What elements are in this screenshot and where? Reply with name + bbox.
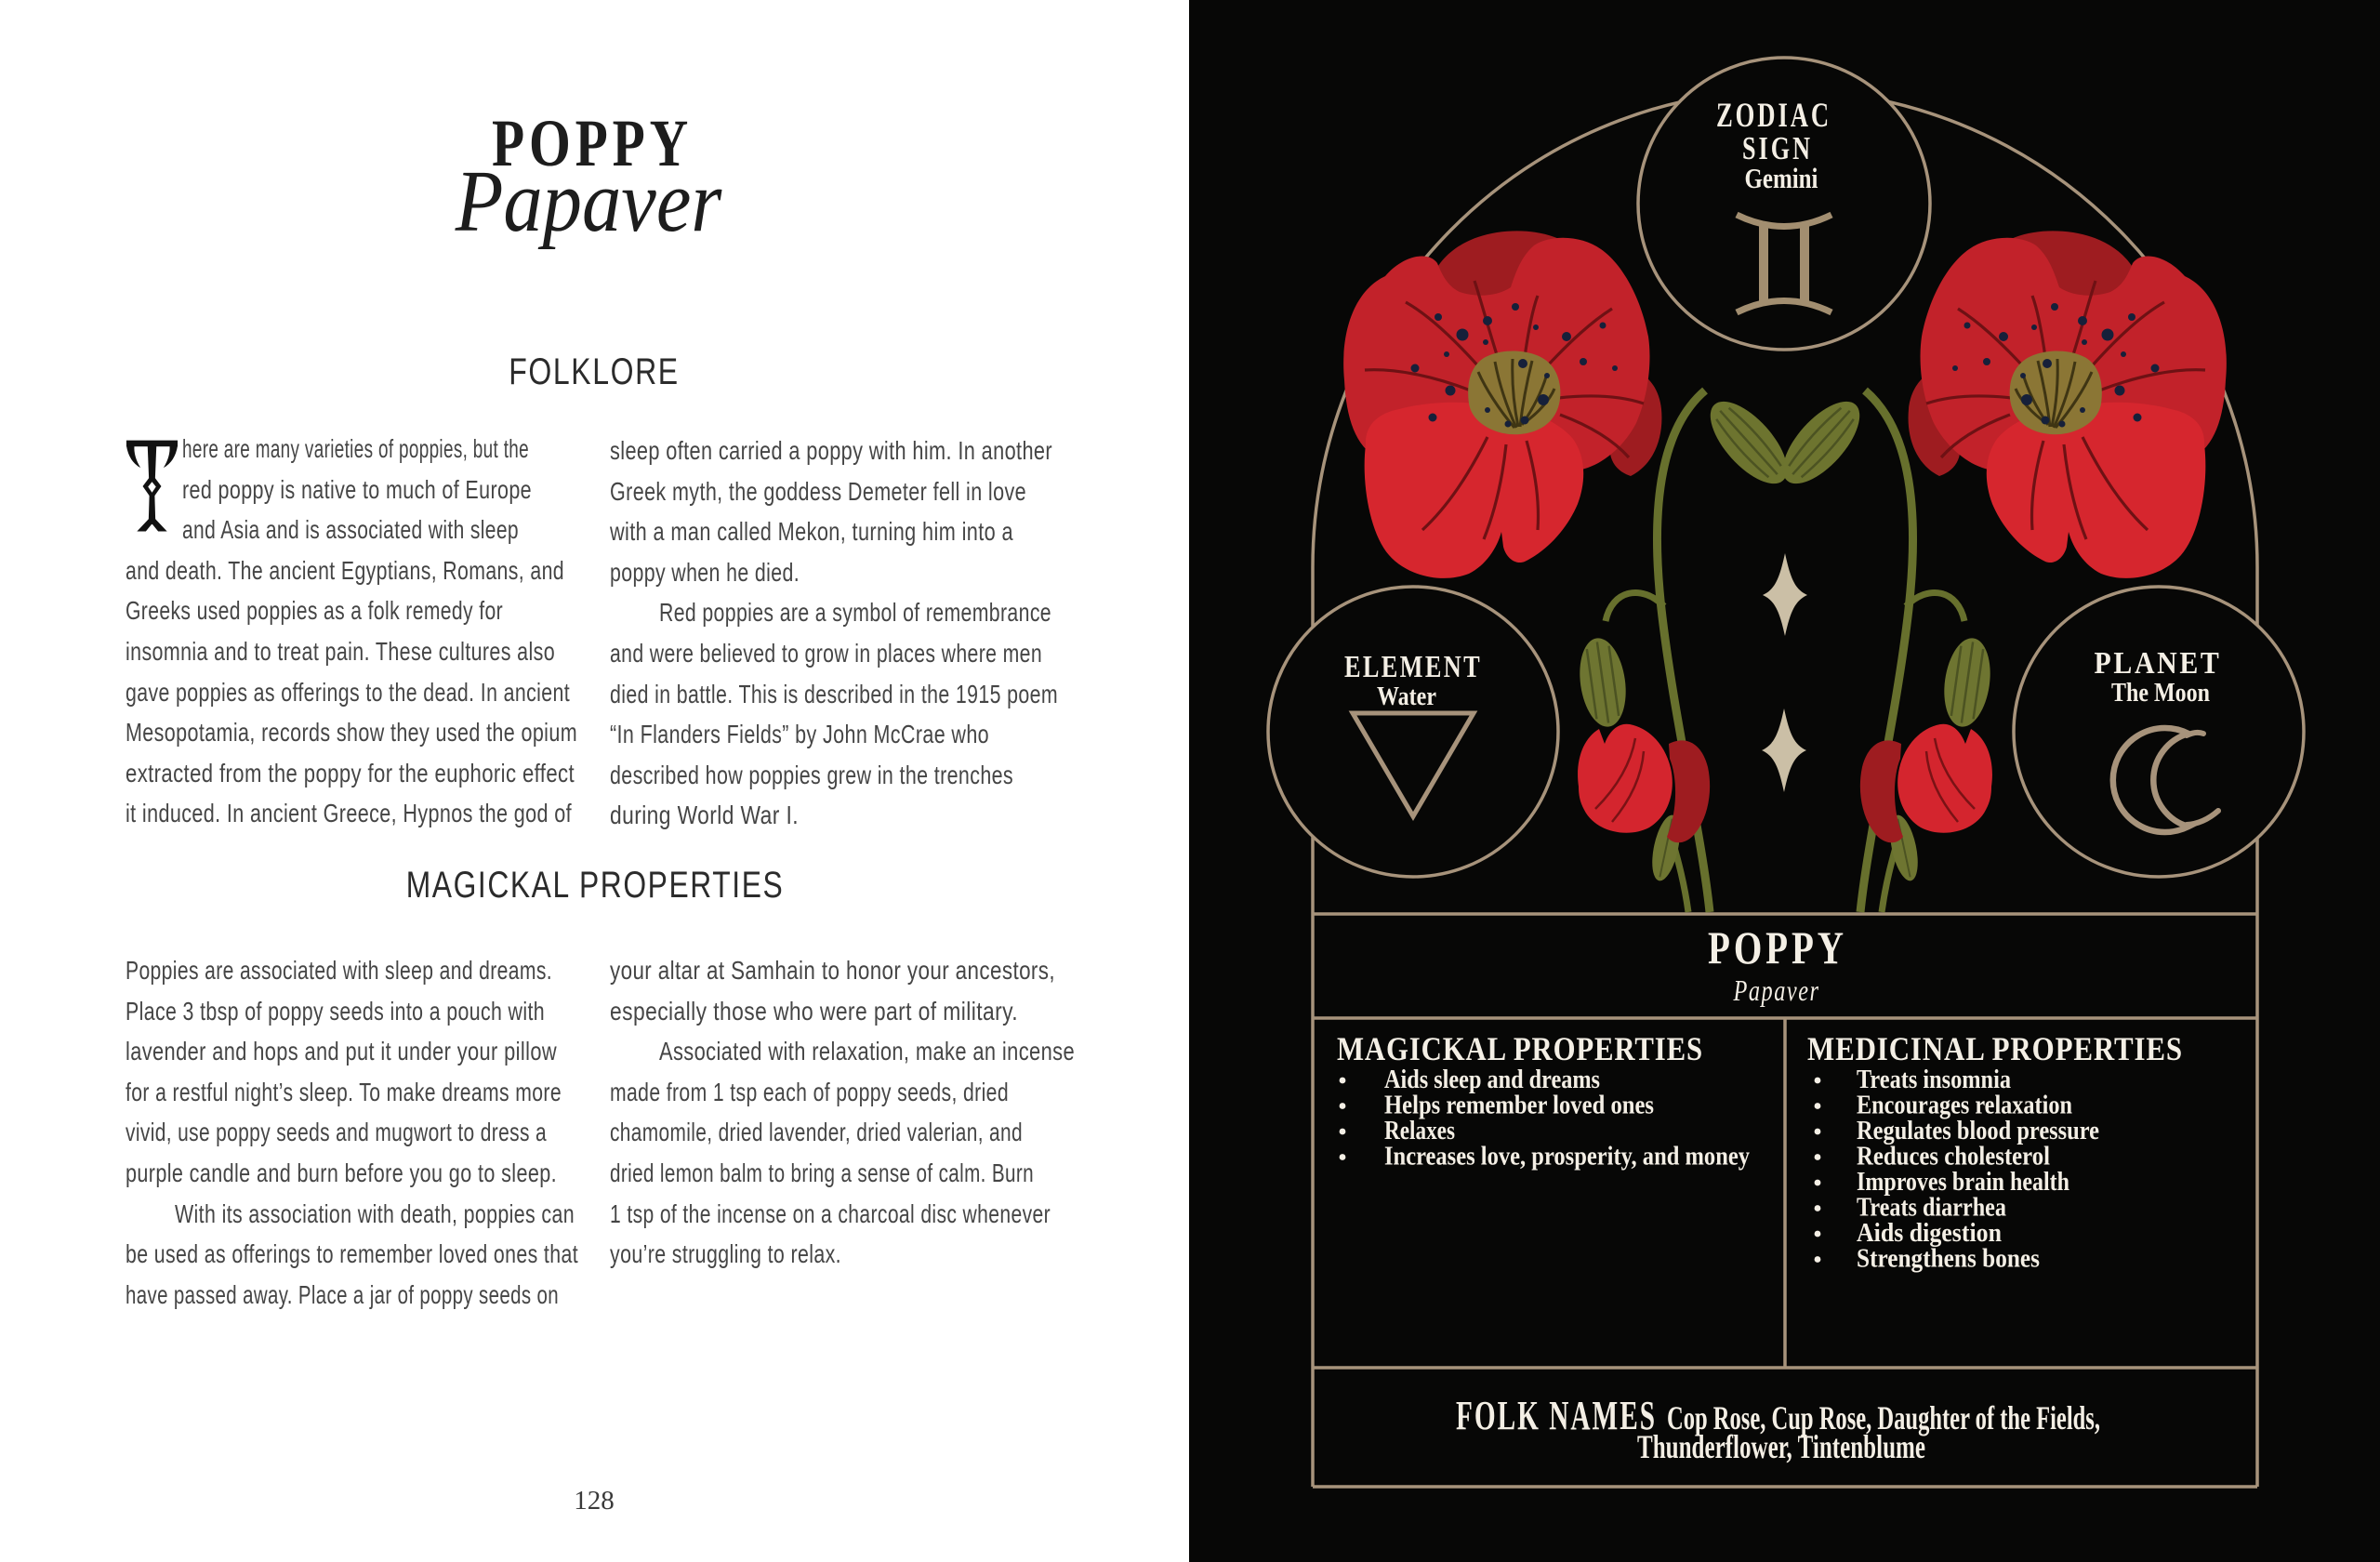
svg-text:POPPY: POPPY — [1708, 921, 1847, 973]
svg-text:MEDICINAL PROPERTIES: MEDICINAL PROPERTIES — [1807, 1030, 2183, 1067]
svg-text:MAGICKAL PROPERTIES: MAGICKAL PROPERTIES — [1337, 1030, 1703, 1067]
svg-text:ZODIAC: ZODIAC — [1716, 97, 1831, 135]
svg-text:ELEMENT: ELEMENT — [1344, 650, 1482, 684]
svg-text:Increases love, prosperity, an: Increases love, prosperity, and money — [1384, 1142, 1750, 1171]
svg-text:Papaver: Papaver — [1733, 973, 1820, 1007]
svg-text:Gemini: Gemini — [1745, 162, 1818, 194]
svg-text:Water: Water — [1377, 682, 1436, 711]
svg-text:Thunderflower, Tintenblume: Thunderflower, Tintenblume — [1637, 1428, 1925, 1465]
svg-text:The Moon: The Moon — [2111, 678, 2210, 708]
svg-text:PLANET: PLANET — [2095, 646, 2222, 681]
svg-text:Strengthens bones: Strengthens bones — [1857, 1244, 2040, 1274]
